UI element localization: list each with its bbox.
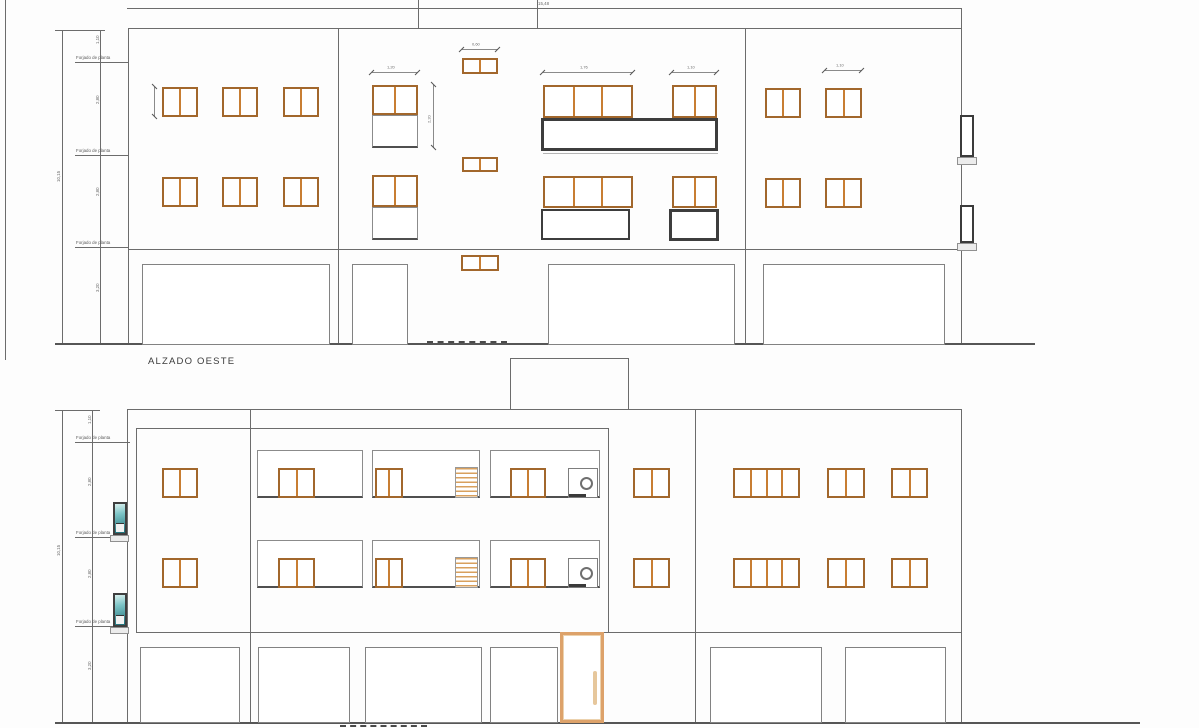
window-mullion [766, 470, 768, 496]
window [633, 468, 670, 498]
glass-lower-pane [116, 523, 124, 532]
floor-level-label: Forjado de planta [76, 619, 110, 624]
window-mullion [909, 560, 911, 586]
porthole-unit [568, 468, 598, 498]
window [510, 468, 546, 498]
facade-line [608, 428, 609, 632]
window-mullion [651, 560, 653, 586]
floor-level-label: Forjado de planta [76, 435, 110, 440]
garage-opening [140, 647, 240, 723]
dimension-label: 3,20 [87, 661, 92, 670]
elevation-title: ALZADO OESTE [148, 356, 235, 367]
drawing-canvas: Forjado de plantaForjado de plantaForjad… [0, 0, 1199, 728]
floor-level-line [75, 442, 130, 443]
window [375, 558, 403, 588]
window [510, 558, 546, 588]
window [891, 468, 928, 498]
stair-hatch-window [455, 557, 478, 588]
garage-opening [490, 647, 558, 723]
facade-line [127, 409, 962, 410]
window [633, 558, 670, 588]
dimension-label: 10,15 [56, 545, 61, 556]
dashed-ground-line [340, 725, 427, 727]
window-mullion [388, 560, 390, 586]
glass-lower-pane [116, 615, 124, 624]
stair-hatch-window [455, 467, 478, 498]
window [733, 468, 800, 498]
window-mullion [909, 470, 911, 496]
dimension-label: 2,80 [87, 569, 92, 578]
window-sill [110, 535, 129, 542]
entrance-door [560, 632, 604, 723]
window [733, 558, 800, 588]
garage-opening [845, 647, 946, 723]
side-glass-window [113, 502, 127, 535]
facade-line [136, 428, 137, 632]
facade-line [62, 410, 63, 723]
window-mullion [296, 470, 298, 496]
porthole-circle [580, 477, 593, 490]
window [827, 468, 865, 498]
window [278, 558, 315, 588]
facade-line [628, 358, 629, 410]
facade-line [250, 409, 251, 723]
facade-line [127, 409, 128, 723]
facade-line [136, 632, 961, 633]
facade-line [136, 428, 608, 429]
window-mullion [781, 560, 783, 586]
garage-opening [365, 647, 482, 723]
window [891, 558, 928, 588]
garage-opening [258, 647, 350, 723]
window-mullion [527, 560, 529, 586]
facade-line [510, 358, 511, 410]
side-glass-window [113, 593, 127, 627]
window [162, 558, 198, 588]
floor-level-label: Forjado de planta [76, 530, 110, 535]
window-sill [110, 627, 129, 634]
window-mullion [179, 470, 181, 496]
window-mullion [296, 560, 298, 586]
window-mullion [750, 560, 752, 586]
garage-opening [710, 647, 822, 723]
facade-line [510, 358, 629, 359]
window-mullion [651, 470, 653, 496]
facade-line [961, 410, 962, 723]
window-mullion [766, 560, 768, 586]
window-mullion [527, 470, 529, 496]
facade-line [92, 410, 93, 723]
porthole-circle [580, 567, 593, 580]
dark-sill-strip [569, 584, 586, 587]
window [375, 468, 403, 498]
dimension-label: 1,10 [87, 415, 92, 424]
window [278, 468, 315, 498]
facade-line [695, 410, 696, 723]
porthole-unit [568, 558, 598, 588]
window-mullion [845, 560, 847, 586]
window-mullion [845, 470, 847, 496]
window-mullion [750, 470, 752, 496]
dimension-label: 2,80 [87, 477, 92, 486]
window [162, 468, 198, 498]
window-mullion [179, 560, 181, 586]
window-mullion [781, 470, 783, 496]
door-handle [593, 671, 597, 705]
facade-line [55, 410, 100, 411]
window-mullion [388, 470, 390, 496]
dark-sill-strip [569, 494, 586, 497]
window [827, 558, 865, 588]
